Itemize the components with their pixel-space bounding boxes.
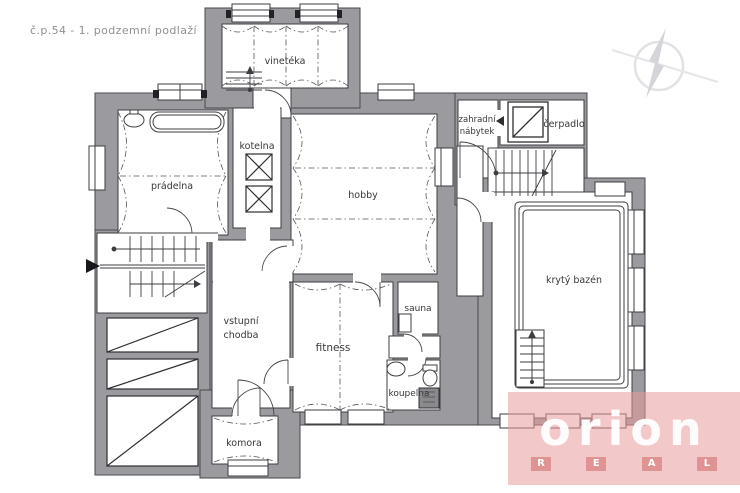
label-zahradni-nabytek-2: nábytek <box>460 127 495 137</box>
logo-letter-a: A <box>642 457 662 471</box>
window-vineteka-left <box>232 4 270 22</box>
logo-letter-l: L <box>697 457 717 471</box>
label-fitness: fitness <box>316 342 351 354</box>
window-komora-south <box>228 460 268 476</box>
orion-logo-text: orion <box>539 406 708 452</box>
washbasin-koupelna-icon <box>387 362 405 376</box>
window-pool-north <box>595 182 625 196</box>
label-vineteka: vinetéka <box>265 56 306 67</box>
label-zahradni-nabytek-1: zahradní <box>459 115 497 125</box>
compass-icon <box>612 28 718 98</box>
window-top-hobby <box>378 84 414 100</box>
windows-pool-east <box>628 210 644 370</box>
label-sauna: sauna <box>404 304 431 314</box>
logo-letter-e: E <box>586 457 606 471</box>
label-vstupni-chodba-2: chodba <box>224 330 259 341</box>
bathtub-icon <box>150 112 224 132</box>
page-title: č.p.54 - 1. podzemní podlaží <box>30 24 197 37</box>
label-pradelna: prádelna <box>151 181 193 192</box>
orion-logo-real-row: R E A L <box>531 457 717 471</box>
window-pradelna-west <box>89 146 105 190</box>
label-cerpadlo: čerpadlo <box>543 119 584 130</box>
toilet-icon <box>423 365 437 386</box>
label-vstupni-chodba-1: vstupní <box>223 316 258 327</box>
corridor-east <box>457 146 483 296</box>
label-komora: komora <box>226 438 262 449</box>
window-vineteka-right <box>300 4 338 22</box>
label-kryty-bazen: krytý bazén <box>546 275 602 286</box>
sauna-stove-icon <box>399 314 411 332</box>
floorplan-page: č.p.54 - 1. podzemní podlaží <box>0 0 740 493</box>
logo-letter-r: R <box>531 457 551 471</box>
label-kotelna: kotelna <box>239 141 274 152</box>
window-top-left <box>158 84 202 100</box>
window-hobby-east <box>435 148 453 186</box>
label-hobby: hobby <box>348 190 378 201</box>
orion-real-logo: orion R E A L <box>508 392 740 485</box>
label-koupelna: koupelna <box>388 389 429 399</box>
